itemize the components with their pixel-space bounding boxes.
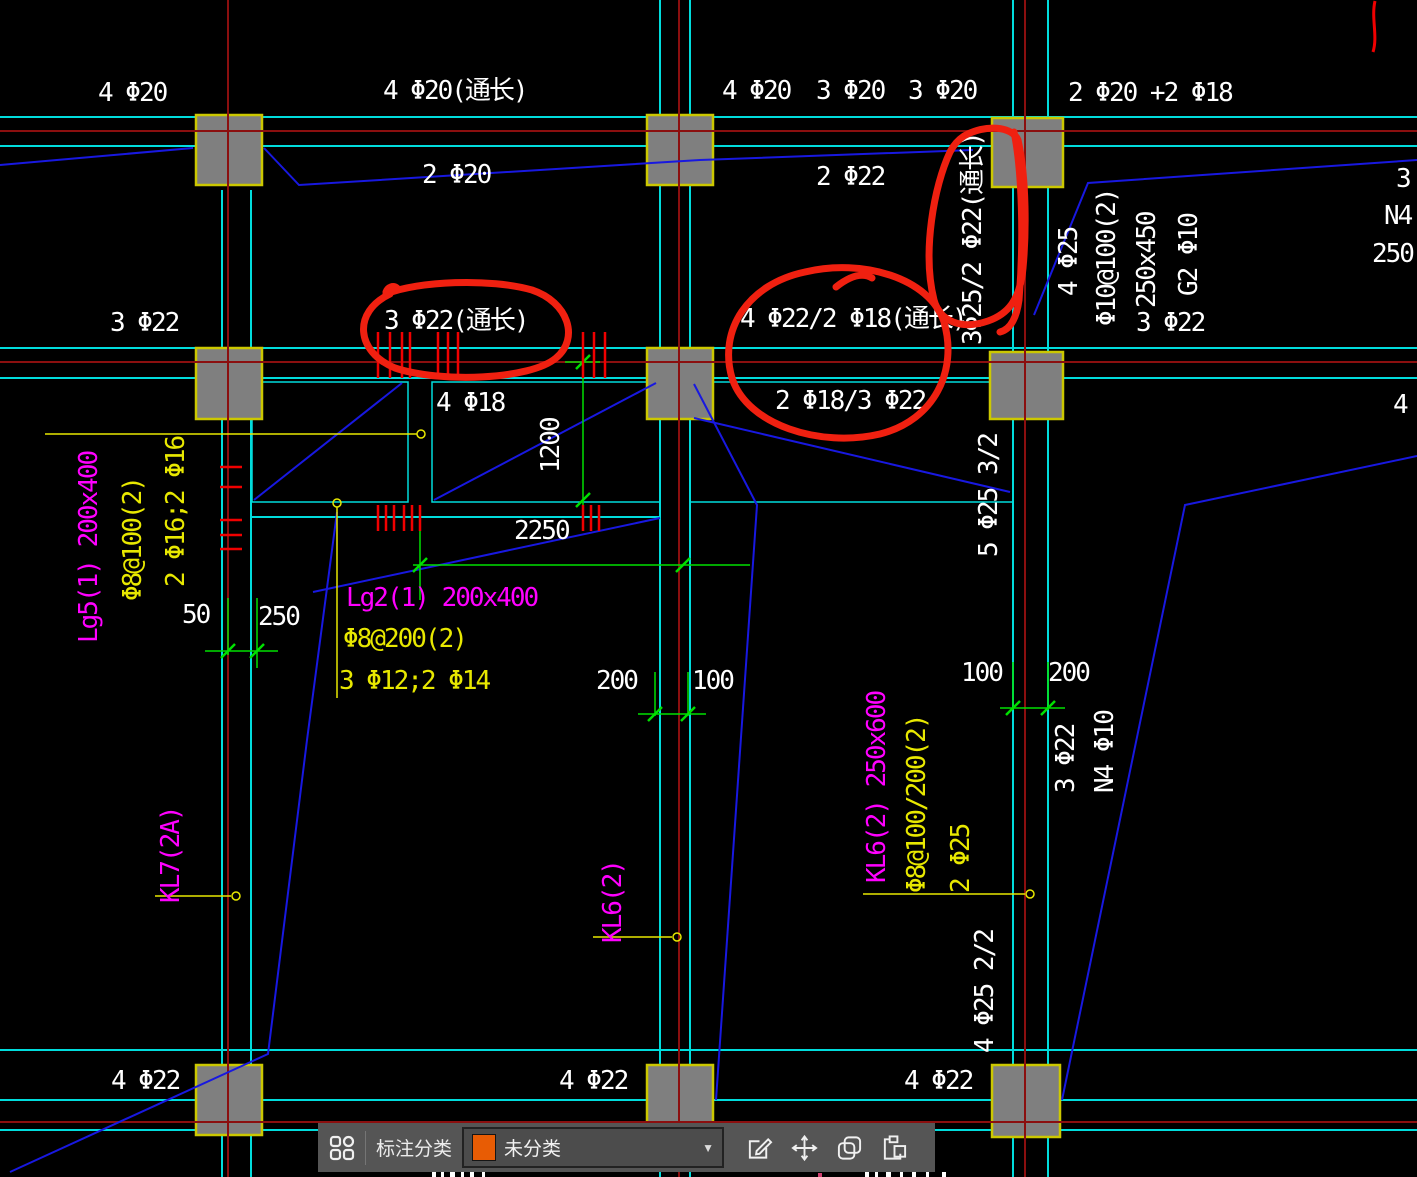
edit-icon[interactable] [746, 1134, 773, 1161]
dimension-label: 2250 [514, 518, 569, 544]
dimension-label: 1200 [538, 418, 564, 473]
rebar-spec-label: 4 Φ20 [722, 78, 790, 104]
copy-icon[interactable] [836, 1134, 863, 1161]
rebar-spec-label: 4 Φ25 2/2 [972, 930, 998, 1053]
rebar-spec-label: 4 Φ18 [436, 390, 504, 416]
rebar-spec-label: 2 Φ20 +2 Φ18 [1068, 80, 1232, 106]
beam-name-label: Lg2(1) 200x400 [346, 585, 537, 611]
annotation-labels: 4 Φ204 Φ20(通长)4 Φ203 Φ203 Φ202 Φ20 +2 Φ1… [0, 0, 1417, 1177]
rebar-spec-label: 3 Φ20 [816, 78, 884, 104]
category-color-swatch [472, 1134, 496, 1161]
beam-name-label: KL6(2) [600, 861, 626, 943]
rebar-spec-label: 4 Φ20 [98, 80, 166, 106]
dimension-label: 250x450 [1134, 212, 1160, 308]
toolbar-divider [365, 1131, 366, 1165]
rebar-spec-label: 4 Φ22 [559, 1068, 627, 1094]
rebar-spec-label: 3 Φ12;2 Φ14 [339, 668, 489, 694]
rebar-spec-label: 2 Φ25 [948, 825, 974, 893]
annotation-toolbar: 标注分类 未分类 ▼ [318, 1123, 935, 1172]
rebar-spec-label: 2 Φ16;2 Φ16 [163, 437, 189, 587]
rebar-spec-label: 3 Φ22 [1136, 310, 1204, 336]
stirrup-spec-label: Φ10@100(2) [1094, 189, 1120, 326]
move-icon[interactable] [791, 1134, 818, 1161]
category-label: 标注分类 [376, 1134, 452, 1161]
category-dropdown-value: 未分类 [504, 1134, 694, 1161]
rebar-spec-label: 4 Φ20(通长) [383, 78, 527, 104]
rebar-spec-label: 3Φ25/2 Φ22(通长) [960, 133, 986, 345]
rebar-spec-label: 3 Φ22(通长) [384, 308, 528, 334]
rebar-spec-label: 2 Φ22 [816, 164, 884, 190]
rebar-spec-label: 3 Φ22 [110, 310, 178, 336]
dimension-label: 200 [1048, 660, 1089, 686]
rebar-spec-label: 4 Φ22 [904, 1068, 972, 1094]
rebar-spec-label: 4 Φ22/2 Φ18(通长) [740, 306, 966, 332]
stirrup-spec-label: Φ8@100(2) [120, 478, 146, 601]
partial-label: 250 [1372, 241, 1413, 267]
cad-viewport[interactable]: 4 Φ204 Φ20(通长)4 Φ203 Φ203 Φ202 Φ20 +2 Φ1… [0, 0, 1417, 1177]
dimension-label: 100 [961, 660, 1002, 686]
rebar-spec-label: N4 Φ10 [1092, 711, 1118, 793]
rebar-spec-label: G2 Φ10 [1176, 214, 1202, 296]
beam-name-label: KL6(2) 250x600 [864, 692, 890, 883]
rebar-spec-label: 2 Φ18/3 Φ22 [775, 388, 925, 414]
rebar-spec-label: 4 Φ25 [1056, 228, 1082, 296]
dimension-label: 250 [258, 604, 299, 630]
dimension-label: 50 [182, 602, 209, 628]
partial-label: 3 [1396, 166, 1410, 192]
rebar-spec-label: 3 Φ20 [908, 78, 976, 104]
rebar-spec-label: 3 Φ22 [1053, 725, 1079, 793]
stirrup-spec-label: Φ8@200(2) [343, 626, 466, 652]
beam-name-label: Lg5(1) 200x400 [76, 452, 102, 643]
beam-name-label: KL7(2A) [158, 807, 184, 903]
partial-label: N4 [1384, 203, 1411, 229]
stirrup-spec-label: Φ8@100/200(2) [904, 716, 930, 894]
rebar-spec-label: 5 Φ25 3/2 [976, 434, 1002, 557]
category-dropdown[interactable]: 未分类 ▼ [462, 1127, 724, 1168]
apps-grid-icon[interactable] [328, 1134, 355, 1161]
dimension-label: 100 [692, 668, 733, 694]
rebar-spec-label: 2 Φ20 [422, 162, 490, 188]
dimension-label: 200 [596, 668, 637, 694]
partial-label: 4 [1393, 392, 1407, 418]
paste-icon[interactable] [881, 1134, 908, 1161]
chevron-down-icon[interactable]: ▼ [702, 1141, 714, 1155]
rebar-spec-label: 4 Φ22 [111, 1068, 179, 1094]
